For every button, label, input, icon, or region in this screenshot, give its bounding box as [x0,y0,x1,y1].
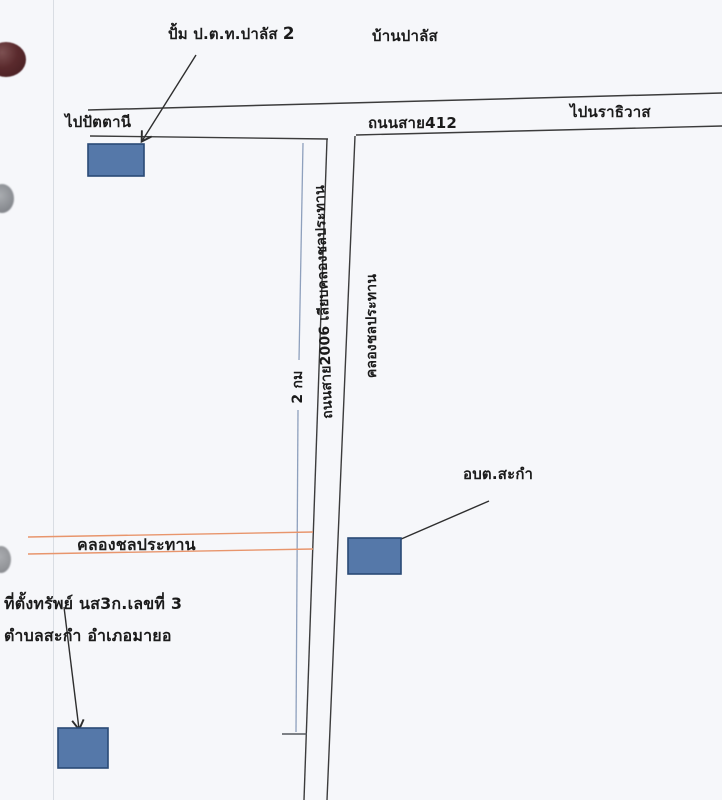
gas-station-building [88,144,144,176]
property-location-line2: ตำบลสะกำ อำเภอมายอ [4,624,172,649]
to-narathiwat-label: ไปนราธิวาส [570,100,651,124]
subdistrict-office-label: อบต.สะกำ [463,462,533,486]
to-pattani-label: ไปปัตตานี [65,110,131,134]
gas-station-number: 2 [283,24,295,44]
property-building [58,728,108,768]
property-location-line1: ที่ตั้งทรัพย์ นส3ก.เลขที่ 3 [4,592,182,617]
village-label: บ้านปาลัส [372,24,438,48]
road-412-bottom-line-left [90,136,328,139]
distance-line-upper [299,143,303,360]
road-412-label: ถนนสาย412 [368,111,457,135]
distance-line-lower [296,410,298,732]
distance-2km-label: 2 กม [287,362,309,412]
canal-horizontal-label: คลองชลประทาน [77,533,196,558]
gas-station-label: ปั้ม ป.ต.ท.ปาลัส2 [168,22,295,46]
gas-station-arrow [142,55,196,141]
map-canvas: ปั้ม ป.ต.ท.ปาลัส2 บ้านปาลัส ไปปัตตานี ถน… [0,0,722,800]
canal-vertical-label: คลองชลประทาน [361,266,383,386]
subdistrict-office-building [348,538,401,574]
gas-station-name: ปั้ม ป.ต.ท.ปาลัส [168,25,278,43]
